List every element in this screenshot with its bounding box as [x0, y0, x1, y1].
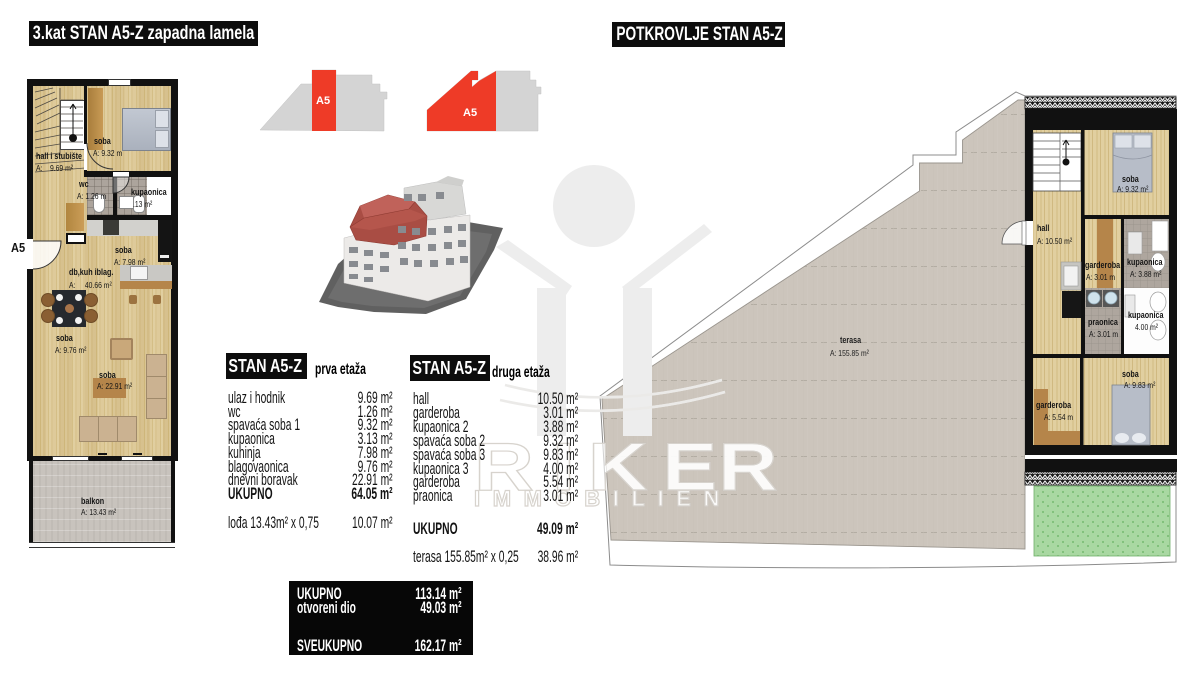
svg-text:kupaonica: kupaonica [1128, 310, 1164, 320]
svg-text:A: 5.54 m: A: 5.54 m [1044, 412, 1073, 422]
svg-text:4.00 m²: 4.00 m² [1135, 322, 1158, 332]
svg-text:soba: soba [1122, 369, 1139, 379]
svg-text:A: 9.32 m²: A: 9.32 m² [1117, 184, 1149, 194]
svg-text:hall: hall [1037, 223, 1049, 233]
svg-text:A: 155.85 m²: A: 155.85 m² [830, 348, 869, 358]
svg-text:A: 3.01 m: A: 3.01 m [1089, 329, 1118, 339]
svg-text:terasa: terasa [840, 335, 862, 345]
svg-text:kupaonica: kupaonica [1127, 257, 1163, 267]
svg-text:garderoba: garderoba [1085, 260, 1121, 270]
svg-text:soba: soba [1122, 174, 1139, 184]
svg-text:A5: A5 [316, 95, 330, 107]
svg-text:A: 3.88 m²: A: 3.88 m² [1130, 269, 1162, 279]
svg-text:A: 10.50 m²: A: 10.50 m² [1037, 236, 1072, 246]
svg-text:A5: A5 [463, 107, 477, 119]
svg-text:A: 9.83 m²: A: 9.83 m² [1124, 380, 1156, 390]
svg-text:praonica: praonica [1088, 317, 1118, 327]
svg-text:garderoba: garderoba [1036, 400, 1072, 410]
svg-text:IMMOBILIEN: IMMOBILIEN [560, 486, 732, 511]
svg-text:A: 3.01 m: A: 3.01 m [1086, 272, 1115, 282]
